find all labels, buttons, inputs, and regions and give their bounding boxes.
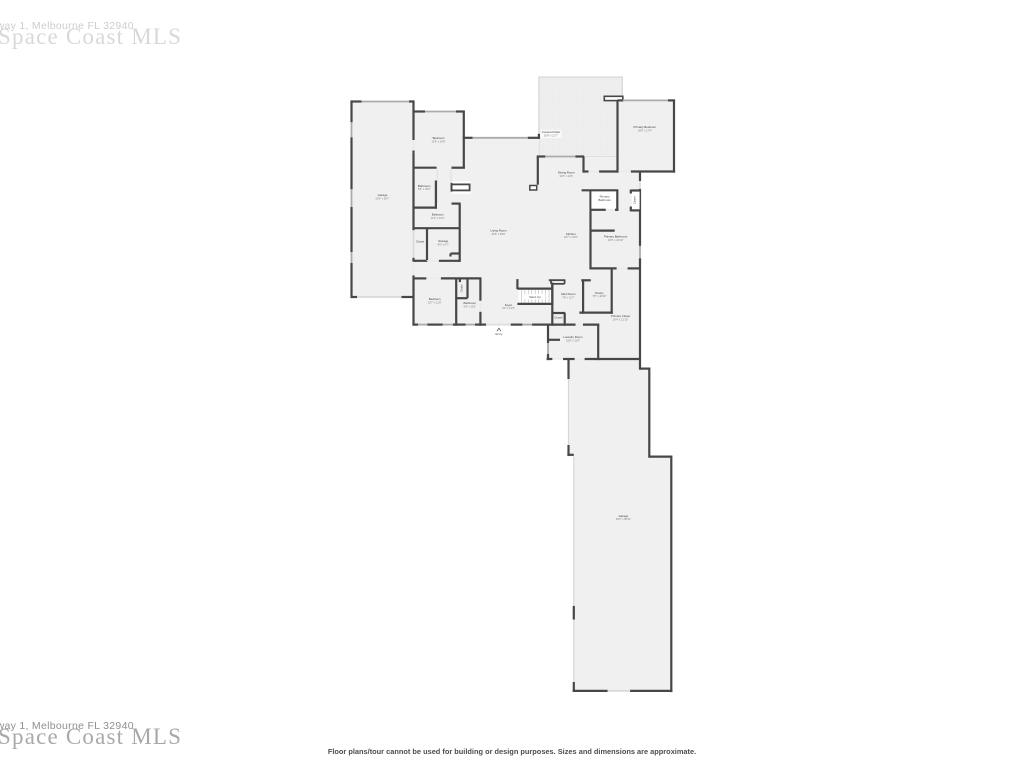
svg-text:Bathroom: Bathroom — [418, 184, 431, 188]
svg-text:Closet: Closet — [416, 239, 424, 243]
svg-text:Dining Room: Dining Room — [558, 171, 575, 175]
svg-text:23'5" x 36'9": 23'5" x 36'9" — [492, 232, 506, 236]
svg-text:26'0" x 65'11": 26'0" x 65'11" — [616, 517, 631, 521]
svg-text:Closet: Closet — [632, 196, 636, 204]
svg-text:10'8" x 11'6": 10'8" x 11'6" — [566, 339, 580, 343]
svg-text:30'8" x 21'7": 30'8" x 21'7" — [544, 133, 558, 137]
svg-text:Kitchen: Kitchen — [566, 232, 576, 236]
svg-text:Entry: Entry — [496, 332, 503, 336]
svg-text:Foyer: Foyer — [505, 303, 512, 307]
svg-text:11'5" x 14'6": 11'5" x 14'6" — [559, 174, 573, 178]
svg-text:Bedroom: Bedroom — [433, 136, 445, 140]
svg-text:Bedroom: Bedroom — [429, 297, 441, 301]
svg-text:8'0" x 6'7": 8'0" x 6'7" — [438, 242, 449, 246]
svg-text:Mud Room: Mud Room — [561, 292, 576, 296]
svg-text:5'8" x 11'5": 5'8" x 11'5" — [464, 305, 476, 309]
svg-text:Primary Closet: Primary Closet — [611, 314, 630, 318]
svg-text:Living Room: Living Room — [490, 229, 507, 233]
svg-text:Stairs Up: Stairs Up — [529, 295, 541, 299]
svg-text:16'5" x 17'4": 16'5" x 17'4" — [638, 128, 652, 132]
svg-text:Closet: Closet — [460, 284, 464, 292]
svg-text:Primary Bedroom: Primary Bedroom — [634, 125, 657, 129]
svg-text:Laundry Room: Laundry Room — [564, 335, 584, 339]
svg-text:13'6" x 10'10": 13'6" x 10'10" — [608, 238, 623, 242]
svg-text:Garage: Garage — [619, 514, 629, 518]
svg-text:12'6" x 14'0": 12'6" x 14'0" — [432, 140, 446, 144]
svg-text:9'0" x 14'3": 9'0" x 14'3" — [502, 306, 515, 310]
svg-text:Primary Bathroom: Primary Bathroom — [604, 234, 628, 238]
svg-text:16'4" x 12'10": 16'4" x 12'10" — [613, 318, 628, 322]
svg-text:11'6" x 10'1": 11'6" x 10'1" — [431, 216, 445, 220]
svg-text:Bathroom: Bathroom — [464, 301, 477, 305]
svg-text:Storage: Storage — [438, 239, 449, 243]
svg-text:5'6" x 10'0": 5'6" x 10'0" — [418, 187, 431, 191]
svg-text:16'7" x 22'0": 16'7" x 22'0" — [564, 235, 578, 239]
svg-text:10'7" x 11'5": 10'7" x 11'5" — [428, 301, 442, 305]
svg-text:Closet: Closet — [554, 315, 562, 319]
svg-text:7'8" x 11'7": 7'8" x 11'7" — [562, 296, 574, 300]
svg-text:Bathroom: Bathroom — [598, 198, 611, 202]
svg-text:23'6" x 63'7": 23'6" x 63'7" — [376, 197, 390, 201]
svg-text:Covered Patio: Covered Patio — [542, 130, 561, 134]
svg-text:7'8" x 10'10": 7'8" x 10'10" — [592, 294, 606, 298]
svg-text:Garage: Garage — [378, 193, 388, 197]
svg-text:Bedroom: Bedroom — [432, 213, 444, 217]
svg-text:Pantry: Pantry — [595, 291, 604, 295]
